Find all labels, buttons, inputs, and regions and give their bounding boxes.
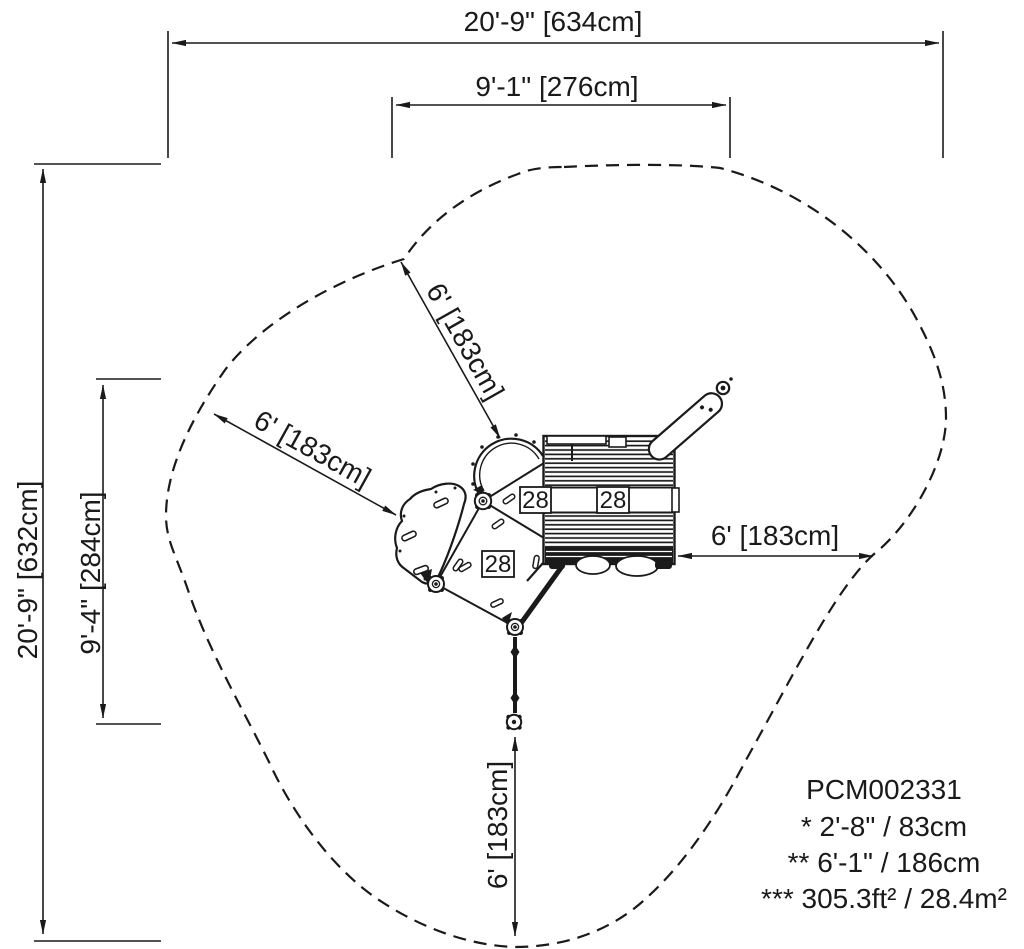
part-label-left-text: 28 [522,487,549,514]
pulley-anchor [506,715,521,730]
dim-inner-width-label: 9'-1" [276cm] [475,71,638,102]
model-number: PCM002331 [806,774,962,805]
deck-top-tab-long [547,436,606,444]
deck-foot-right [655,561,672,569]
deck-top-tab-small [609,437,626,447]
notes-block: PCM002331 * 2'-8" / 83cm ** 6'-1" / 186c… [761,774,1007,914]
dim-clearance-left-label: 6' [183cm] [249,404,376,493]
dim-inner-width: 9'-1" [276cm] [392,71,730,158]
part-label-center-text: 28 [600,487,627,514]
dim-inner-height-label: 9'-4" [284cm] [75,491,106,654]
dim-clearance-upper-label: 6' [183cm] [420,278,510,405]
play-structure: 28 28 28 [395,377,733,730]
dim-overall-width-label: 20'-9" [634cm] [464,6,643,37]
part-label-center: 28 [597,487,629,514]
zipline-rod [511,637,520,713]
plan-svg: 28 28 28 20'-9" [634cm] 9'-1" [276cm] 20… [0,0,1024,949]
deck-band-right-tab [672,488,679,512]
dim-overall-height-label: 20'-9" [632cm] [12,481,43,660]
part-label-left: 28 [520,487,551,514]
dim-clearance-bottom: 6' [183cm] [482,737,515,936]
pivot-joint-bottom [502,612,523,635]
plan-drawing: 28 28 28 20'-9" [634cm] 9'-1" [276cm] 20… [0,0,1024,949]
note-star2: ** 6'-1" / 186cm [788,847,981,878]
pivot-joint-upper [473,485,491,509]
part-label-lower: 28 [482,551,514,578]
dim-clearance-right: 6' [183cm] [678,520,873,556]
part-label-lower-text: 28 [485,551,512,578]
rope [519,565,563,626]
dim-clearance-right-label: 6' [183cm] [711,520,839,551]
deck-cutout-left [576,556,610,574]
dim-inner-height: 9'-4" [284cm] [75,379,161,724]
note-star1: * 2'-8" / 83cm [801,811,967,842]
dim-clearance-left: 6' [183cm] [214,404,396,515]
dim-clearance-bottom-label: 6' [183cm] [482,761,513,889]
deck-cutout-right [616,556,658,576]
note-star3: *** 305.3ft² / 28.4m² [761,883,1007,914]
periscope-arm [645,377,733,464]
deck-hatch-bottom [545,514,673,547]
dim-clearance-upper: 6' [183cm] [401,262,510,438]
